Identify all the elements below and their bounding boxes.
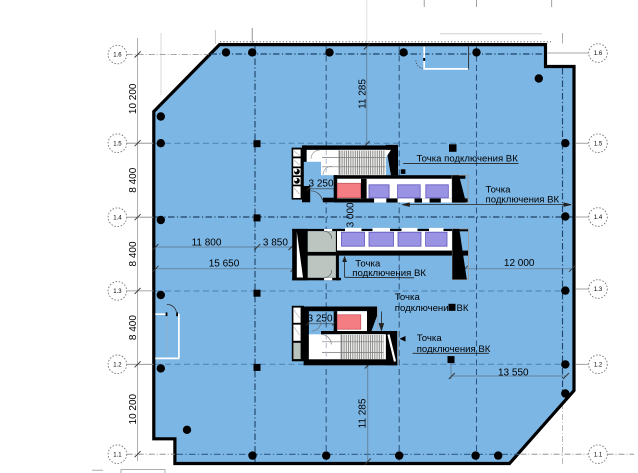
svg-text:11 800: 11 800	[192, 237, 222, 248]
svg-text:подключения ВК: подключения ВК	[352, 268, 426, 279]
svg-text:Точка: Точка	[395, 292, 421, 303]
svg-text:8 400: 8 400	[128, 167, 139, 192]
svg-text:1.2: 1.2	[113, 363, 122, 369]
svg-text:13 550: 13 550	[498, 368, 529, 379]
svg-text:1.2: 1.2	[594, 363, 603, 369]
svg-text:3 850: 3 850	[263, 238, 288, 249]
svg-text:8 400: 8 400	[128, 315, 139, 340]
svg-text:10 200: 10 200	[128, 83, 139, 114]
svg-text:8 400: 8 400	[128, 241, 139, 266]
svg-text:3 000: 3 000	[345, 202, 356, 227]
svg-text:11 285: 11 285	[357, 398, 368, 428]
svg-text:11 285: 11 285	[358, 79, 369, 109]
svg-text:12 000: 12 000	[504, 258, 535, 269]
svg-text:1.1: 1.1	[594, 452, 603, 458]
svg-text:подключения ВК: подключения ВК	[395, 303, 469, 314]
svg-text:3 250: 3 250	[307, 314, 332, 325]
svg-text:3 250: 3 250	[308, 179, 333, 190]
svg-text:1.3: 1.3	[594, 287, 603, 293]
svg-text:1.6: 1.6	[594, 51, 603, 57]
svg-text:1.3: 1.3	[113, 289, 122, 295]
svg-text:1.1: 1.1	[113, 452, 122, 458]
svg-text:подключения ВК: подключения ВК	[486, 194, 560, 205]
svg-text:10 200: 10 200	[128, 393, 139, 424]
svg-text:1.4: 1.4	[594, 215, 603, 221]
svg-text:Точка: Точка	[417, 333, 443, 344]
svg-text:15 650: 15 650	[209, 259, 240, 270]
svg-text:1.5: 1.5	[594, 141, 603, 147]
svg-text:1.6: 1.6	[113, 53, 122, 59]
svg-text:1.4: 1.4	[113, 215, 122, 221]
svg-text:1.5: 1.5	[113, 141, 122, 147]
